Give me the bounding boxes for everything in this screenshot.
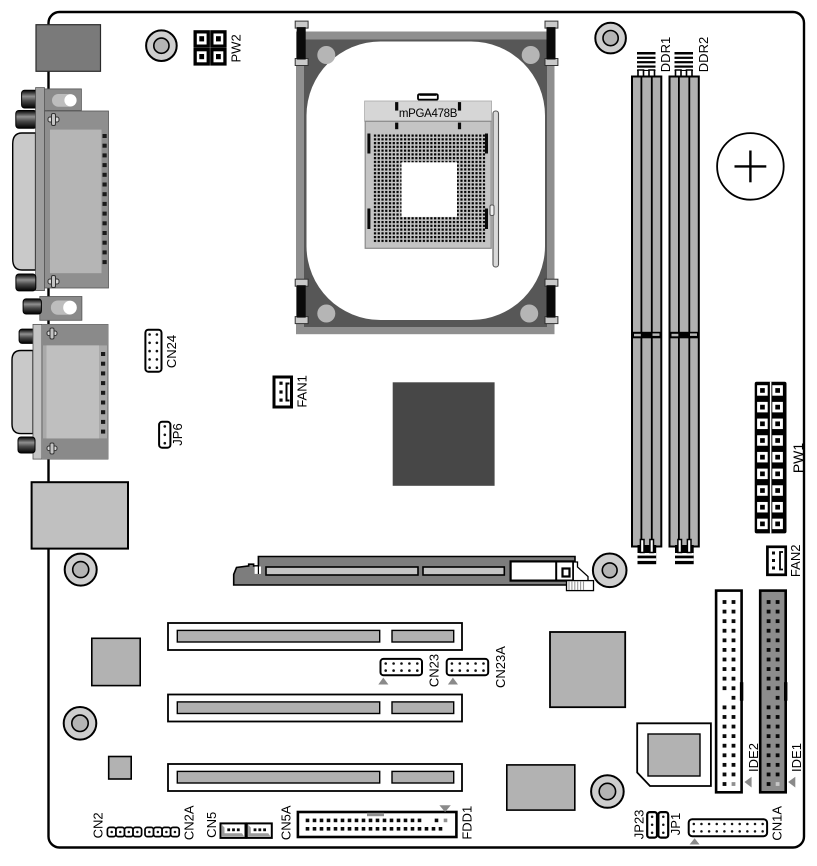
svg-text:CN2A: CN2A [182, 805, 197, 840]
svg-text:FAN1: FAN1 [294, 375, 309, 408]
svg-text:PW1: PW1 [790, 443, 806, 474]
svg-text:CN5A: CN5A [279, 805, 294, 840]
svg-text:CN2: CN2 [91, 812, 106, 838]
svg-text:CN1A: CN1A [770, 806, 785, 841]
svg-text:FDD1: FDD1 [460, 806, 475, 840]
svg-text:JP1: JP1 [668, 813, 683, 835]
svg-text:CN23: CN23 [427, 654, 442, 687]
svg-text:CN5: CN5 [204, 812, 219, 838]
svg-text:CN24: CN24 [164, 335, 179, 368]
svg-text:JP23: JP23 [632, 810, 647, 840]
svg-text:PW2: PW2 [229, 34, 244, 62]
svg-text:mPGA478B: mPGA478B [399, 108, 458, 120]
svg-text:FAN2: FAN2 [788, 545, 803, 578]
svg-text:JP6: JP6 [170, 423, 185, 445]
svg-text:IDE1: IDE1 [789, 743, 804, 772]
svg-text:DDR1: DDR1 [658, 37, 673, 72]
svg-text:DDR2: DDR2 [696, 37, 711, 72]
svg-text:CN23A: CN23A [493, 646, 508, 688]
svg-text:IDE2: IDE2 [746, 743, 761, 772]
